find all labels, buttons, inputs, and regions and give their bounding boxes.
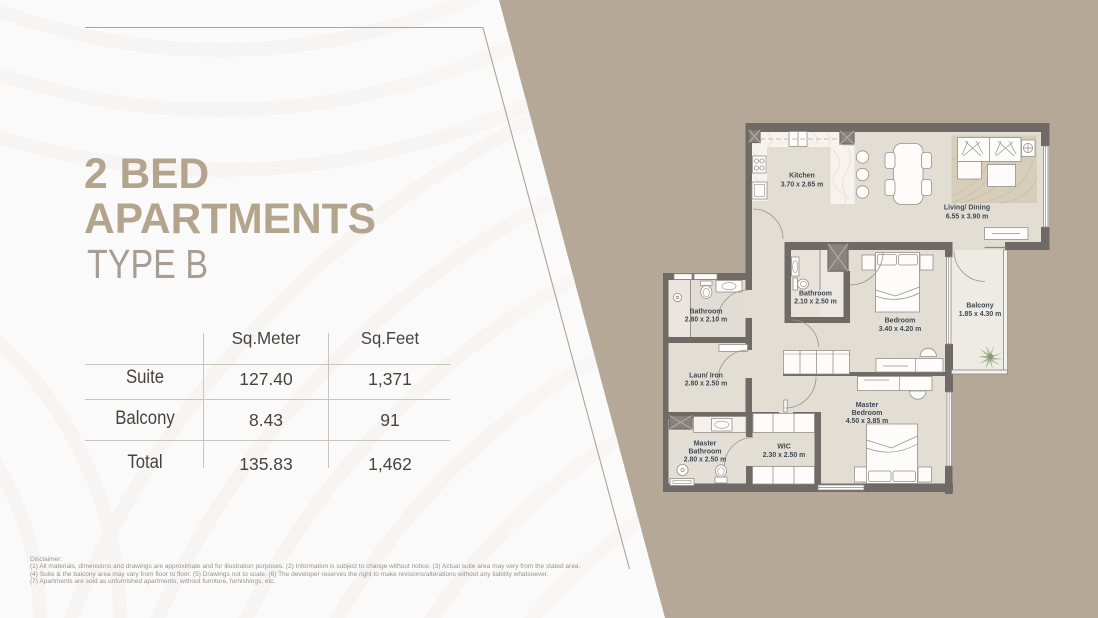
svg-text:6.55 x 3.90 m: 6.55 x 3.90 m: [946, 214, 989, 221]
svg-text:Bathroom: Bathroom: [799, 291, 832, 298]
svg-text:3.40 x 4.20 m: 3.40 x 4.20 m: [879, 326, 922, 333]
svg-text:1.85 x 4.30 m: 1.85 x 4.30 m: [959, 311, 1002, 318]
svg-text:2.10 x 2.50 m: 2.10 x 2.50 m: [794, 299, 837, 306]
svg-text:2.30 x 2.50 m: 2.30 x 2.50 m: [763, 452, 806, 459]
svg-text:Bathroom: Bathroom: [688, 449, 721, 456]
svg-text:2.80 x 2.10 m: 2.80 x 2.10 m: [685, 317, 728, 324]
svg-text:Balcony: Balcony: [966, 303, 993, 310]
svg-text:Bathroom: Bathroom: [689, 309, 722, 316]
svg-text:4.50 x 3.85 m: 4.50 x 3.85 m: [846, 418, 889, 425]
svg-text:Bedroom: Bedroom: [885, 318, 916, 325]
svg-text:Master: Master: [856, 402, 879, 409]
svg-text:Living/ Dining: Living/ Dining: [944, 205, 990, 212]
svg-text:Bedroom: Bedroom: [852, 410, 883, 417]
svg-text:Laun/ Iron: Laun/ Iron: [689, 373, 723, 380]
svg-text:2.80 x 2.50 m: 2.80 x 2.50 m: [684, 457, 727, 464]
svg-text:WIC: WIC: [777, 444, 791, 451]
svg-text:2.80 x 2.50 m: 2.80 x 2.50 m: [685, 381, 728, 388]
svg-text:Master: Master: [694, 441, 717, 448]
svg-text:Kitchen: Kitchen: [789, 173, 815, 180]
svg-text:3.70 x 2.65 m: 3.70 x 2.65 m: [781, 182, 824, 189]
